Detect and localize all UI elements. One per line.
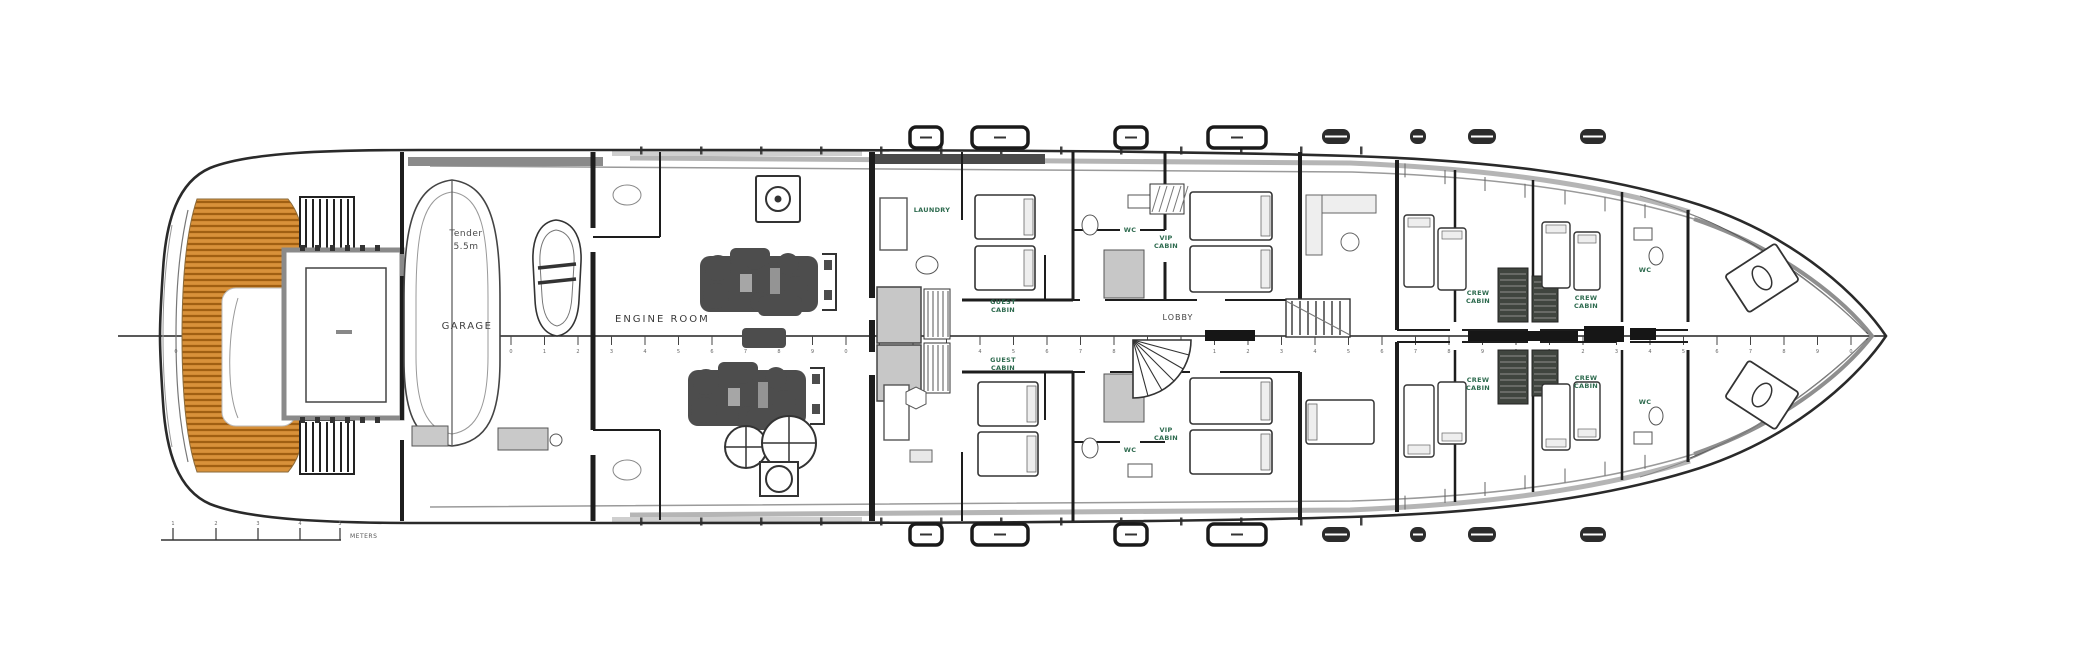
ruler-tick-number: 1 [1213,349,1216,355]
bow-gear-top [1725,243,1799,313]
spiral-staircase [1133,340,1191,398]
guest-cabin-top-label-1: GUEST [990,298,1016,306]
engine-part [693,369,719,395]
ruler-tick-number: 5 [677,349,680,355]
ruler-tick-number: 4 [643,349,646,355]
crew-cabin-2-bottom: CREW CABIN [1542,374,1600,450]
ruler-tick-number: 2 [1246,349,1249,355]
engine-part [777,253,799,275]
wc-bottom-label: WC [1124,446,1137,454]
crew2-top-label-2: CABIN [1574,302,1598,310]
guest-cabin-bottom-label-1: GUEST [990,356,1016,364]
engine-part [824,260,832,270]
module-dot [300,245,305,251]
ruler-tick-number: 4 [1648,349,1651,355]
guest-cabin-bottom-label-2: CABIN [991,364,1015,372]
module-dot [375,245,380,251]
guest-cabin-bottom: GUEST CABIN [978,356,1038,476]
ruler-tick-number: 6 [710,349,713,355]
engine-part [812,374,820,384]
engine-part [824,290,832,300]
ruler-tick-number: 3 [1615,349,1618,355]
ruler-tick-number: 6 [1380,349,1383,355]
ruler-tick-number: 4 [1313,349,1316,355]
scale-tick-label: 4 [298,521,301,527]
ruler-tick-number: 6 [1715,349,1718,355]
scale-bar: 12345 METERS [161,521,377,540]
engine-part [718,362,758,380]
module-dot [330,245,335,251]
scale-tick-label: 2 [214,521,217,527]
vip-bottom-label-2: CABIN [1154,434,1178,442]
lobby-label: LOBBY [1163,313,1194,322]
ruler-tick-number: 7 [1079,349,1082,355]
ruler-tick-number: 4 [978,349,981,355]
vip-top-label-1: VIP [1159,234,1172,242]
ruler-tick-number: 8 [1112,349,1115,355]
capstans [725,416,816,496]
wc-top-label: WC [1124,226,1137,234]
vip-bottom-label-1: VIP [1159,426,1172,434]
engine-part [705,255,731,281]
ruler-tick-number: 0 [844,349,847,355]
ruler-tick-number: 5 [1682,349,1685,355]
jetski [533,220,581,336]
engine-slot [740,274,752,292]
ruler-tick-number: 8 [1447,349,1450,355]
crew2-top-label-1: CREW [1575,294,1598,302]
tender-label-line2: 5.5m [453,242,478,252]
engine-part [730,248,770,266]
crew-wc-top: WC [1634,228,1663,274]
ruler-tick-number: 8 [1782,349,1785,355]
ruler-tick-number: 9 [1481,349,1484,355]
frame-tick [1360,147,1363,155]
vip-top-label-2: CABIN [1154,242,1178,250]
frame-tick [820,518,823,526]
module-dot [375,417,380,423]
ruler-tick-number: 7 [1414,349,1417,355]
module-dot [315,245,320,251]
frame-tick [700,518,703,526]
crew2-bottom-label-2: CABIN [1574,382,1598,390]
module-dot [300,417,305,423]
crew-cabin-1-bottom: CREW CABIN [1404,376,1490,457]
engine-part [758,296,802,316]
ruler-tick-number: 7 [1749,349,1752,355]
crew1-bottom-label-1: CREW [1467,376,1490,384]
crew-wc-bottom: WC [1634,398,1663,444]
crew-wc-bottom-label: WC [1639,398,1652,406]
deck-plan-drawing: 0123456789012345678901234567890123456789… [0,0,2097,672]
module-dot [330,417,335,423]
ruler-tick-number: 1 [543,349,546,355]
garage-label: GARAGE [442,321,493,332]
crew-wc-top-label: WC [1639,266,1652,274]
stern-hatch-module [284,245,402,423]
yacht-lower-deck-plan: 0123456789012345678901234567890123456789… [0,0,2097,672]
ruler-tick-number: 7 [744,349,747,355]
crew2-bottom-label-1: CREW [1575,374,1598,382]
module-dot [360,245,365,251]
module-dot [315,417,320,423]
ruler-tick-number: 0 [509,349,512,355]
tender-label-line1: Tender [448,229,482,239]
corridor-thresholds [1205,326,1656,342]
tank-top [877,287,921,343]
engine-slot [758,382,768,408]
ruler-tick-number: 2 [1581,349,1584,355]
ruler-tick-number: 5 [1012,349,1015,355]
locker [1498,350,1528,404]
ruler-tick-number: 6 [1045,349,1048,355]
guest-cabin-top: GUEST CABIN [975,195,1035,314]
locker [1498,268,1528,322]
vip-cabin-top: VIP CABIN [1150,184,1272,292]
frame-tick [1360,518,1363,526]
frame-tick [640,518,643,526]
module-dot [360,417,365,423]
engine-slot [770,268,780,294]
stern-stairs-bottom [300,420,354,474]
scale-units-label: METERS [350,533,377,540]
crew1-top-label-2: CABIN [1466,297,1490,305]
engine-part [703,283,729,309]
engine-part [812,404,820,414]
vip-cabin-bottom: VIP CABIN [1154,378,1272,474]
garage: Tender 5.5m GARAGE [404,180,581,450]
ruler-tick-number: 8 [777,349,780,355]
frame-tick [760,518,763,526]
ruler-tick-number: 5 [1347,349,1350,355]
scale-tick-label: 3 [256,521,259,527]
crew1-bottom-label-2: CABIN [1466,384,1490,392]
crew1-top-label-1: CREW [1467,289,1490,297]
laundry-label: LAUNDRY [914,206,951,214]
guest-bath-top: WC [1082,195,1152,298]
engine-part [691,397,717,423]
fwd-cabin-bottom [1306,400,1374,444]
module-dot [345,417,350,423]
engine-room-vent [756,176,800,222]
scale-tick-label: 1 [171,521,174,527]
crew-cabin-1-top: CREW CABIN [1404,215,1490,305]
ruler-tick-number: 2 [576,349,579,355]
module-dot [345,245,350,251]
ruler-tick-number: 3 [610,349,613,355]
engine-part [765,367,787,389]
ruler-tick-number: 9 [811,349,814,355]
ruler-tick-number: 3 [1280,349,1283,355]
fwd-cabin-top [1306,195,1376,255]
engine-port [700,248,836,316]
scale-tick-label: 5 [338,521,341,527]
engine-room-label: ENGINE ROOM [615,314,710,325]
engine-slot [728,388,740,406]
bow-gear-bottom [1725,360,1799,430]
straight-staircase [1286,299,1350,337]
ruler-tick-number: 9 [1816,349,1819,355]
engine-gearbox [742,328,786,348]
guest-cabin-top-label-2: CABIN [991,306,1015,314]
